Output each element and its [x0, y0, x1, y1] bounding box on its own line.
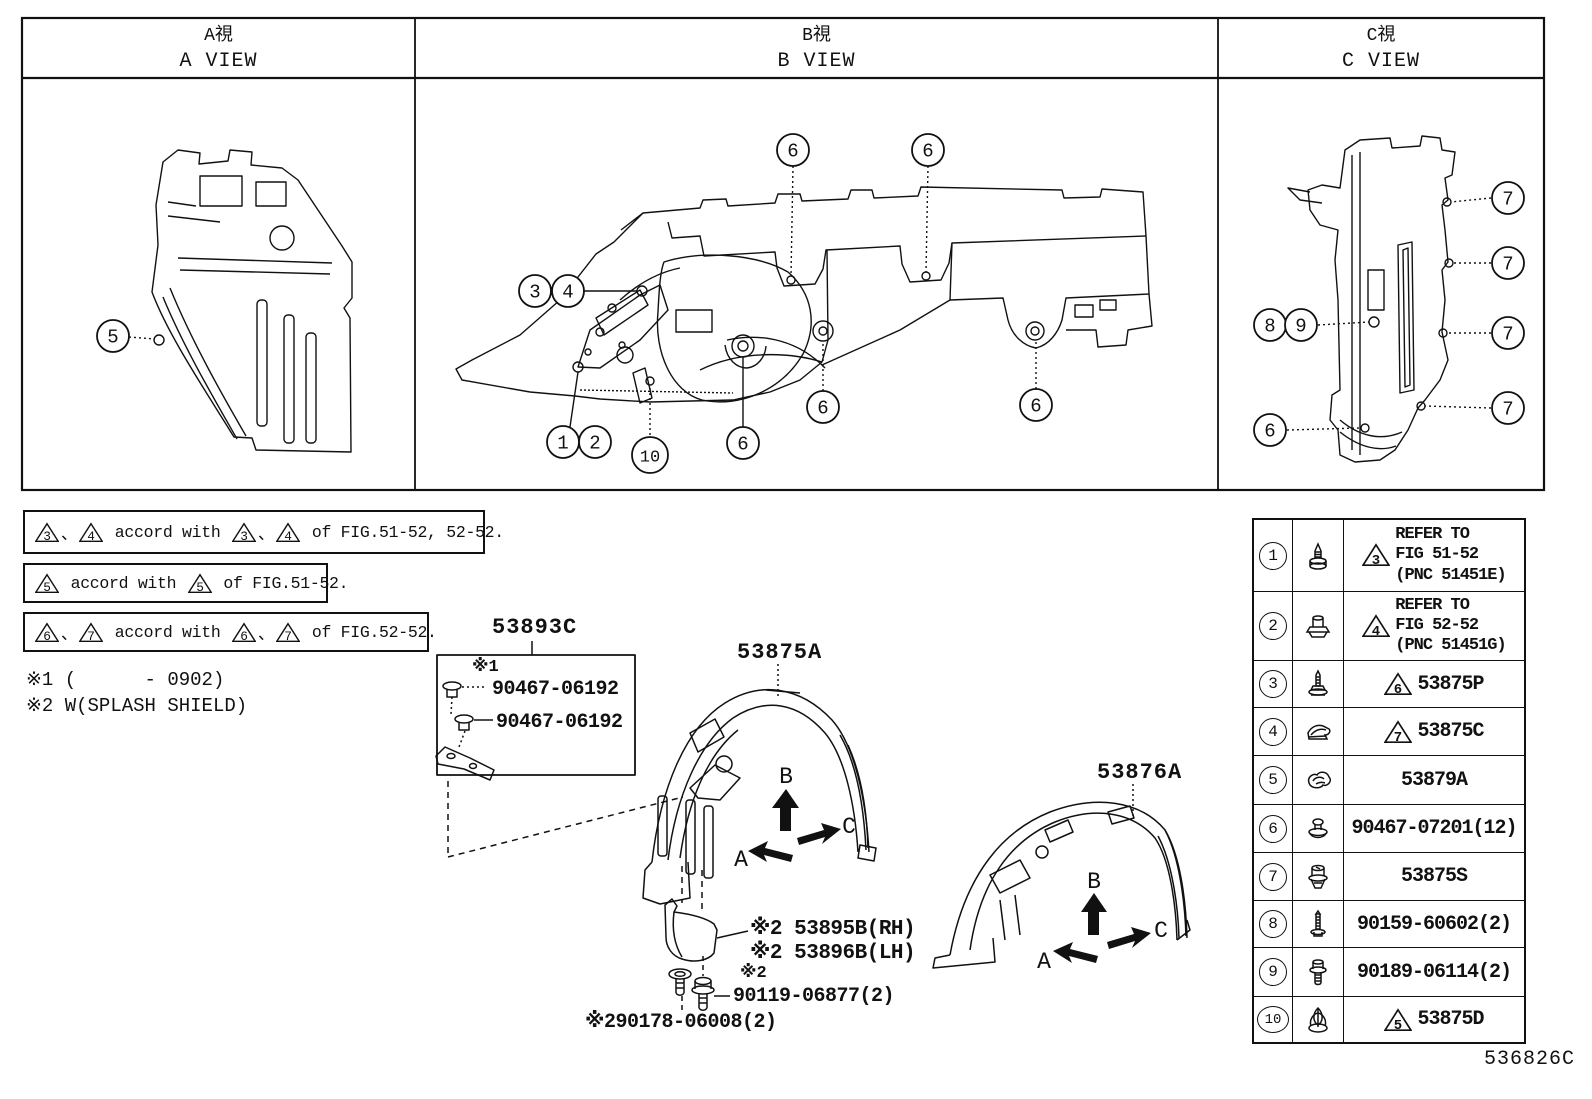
part-label-clip-b: 90467-06192 — [496, 711, 623, 734]
triangle-5-icon: 5 — [1384, 1008, 1412, 1032]
callout-5: 5 — [97, 320, 129, 352]
direction-letter-A: A — [734, 847, 748, 873]
ref-number-badge: 2 — [1259, 612, 1287, 640]
part-label-53875a: 53875A — [737, 640, 822, 665]
svg-text:3: 3 — [1372, 553, 1380, 567]
svg-text:6: 6 — [922, 141, 933, 163]
ref-number-badge: 3 — [1259, 670, 1287, 698]
callout-7: 7 — [1492, 182, 1524, 214]
direction-letter-B: B — [779, 764, 793, 790]
tapping-screw-icon — [1303, 909, 1333, 939]
screw-icon — [1303, 541, 1333, 571]
svg-text:7: 7 — [1502, 399, 1513, 421]
callout-6: 6 — [1254, 414, 1286, 446]
callout-2: 2 — [579, 426, 611, 458]
table-row: 3653875P — [1254, 660, 1524, 707]
svg-text:6: 6 — [240, 629, 247, 643]
note-text-end: of FIG.51-52, 52-52. — [302, 523, 504, 542]
note2-mark: ※2 — [740, 962, 767, 983]
part-number-text: 90159-60602(2) — [1357, 913, 1511, 936]
table-row: 990189-06114(2) — [1254, 947, 1524, 996]
svg-text:6: 6 — [1030, 396, 1041, 418]
part-number-text: 53875P — [1417, 673, 1483, 696]
part-label-53893c: 53893C — [492, 615, 577, 640]
ref-number-badge: 4 — [1259, 718, 1287, 746]
callout-1: 1 — [547, 426, 579, 458]
callout-7: 7 — [1492, 392, 1524, 424]
part-number-text: 53875S — [1401, 865, 1467, 888]
direction-letter-C: C — [1154, 918, 1168, 944]
svg-text:4: 4 — [87, 529, 95, 543]
callout-6: 6 — [727, 427, 759, 459]
triangle-6-icon: 6 — [1384, 672, 1412, 696]
part-number-text: 53875C — [1417, 720, 1483, 743]
svg-text:9: 9 — [1295, 316, 1306, 338]
table-row: 753875S — [1254, 852, 1524, 900]
svg-text:4: 4 — [1372, 624, 1380, 638]
front-liner-drawing — [643, 664, 876, 912]
a-view-title-en: A VIEW — [22, 48, 415, 75]
svg-text:5: 5 — [43, 580, 50, 594]
callout-10: 10 — [632, 437, 668, 473]
svg-text:6: 6 — [1394, 682, 1402, 696]
callout-9: 9 — [1285, 309, 1317, 341]
part-number-text: 53879A — [1401, 769, 1467, 792]
table-row: 890159-60602(2) — [1254, 900, 1524, 947]
svg-text:7: 7 — [1394, 729, 1402, 743]
footnote-2: ※2 W(SPLASH SHIELD) — [26, 694, 247, 717]
table-row: 13REFER TO FIG 51-52 (PNC 51451E) — [1254, 520, 1524, 591]
svg-text:5: 5 — [107, 327, 118, 349]
triangle-6-icon: 6 — [35, 622, 59, 643]
note1-mark: ※1 — [472, 656, 499, 677]
svg-text:3: 3 — [529, 282, 540, 304]
svg-text:7: 7 — [1502, 324, 1513, 346]
callout-7: 7 — [1492, 247, 1524, 279]
part-label-screw: ※290178-06008(2) — [585, 1008, 776, 1034]
triangle-7-icon: 7 — [1384, 720, 1412, 744]
c-view-title-jp: C視 — [1218, 24, 1544, 48]
svg-text:8: 8 — [1264, 316, 1275, 338]
table-row: 24REFER TO FIG 52-52 (PNC 51451G) — [1254, 591, 1524, 660]
part-label-mudguard-rh: ※2 53895B(RH) — [750, 915, 915, 941]
svg-text:7: 7 — [285, 629, 292, 643]
triangle-5-icon: 5 — [35, 573, 59, 594]
c-view-title-en: C VIEW — [1218, 48, 1544, 75]
svg-text:6: 6 — [787, 141, 798, 163]
svg-text:6: 6 — [737, 434, 748, 456]
table-row: 553879A — [1254, 755, 1524, 804]
svg-text:4: 4 — [285, 529, 293, 543]
table-row: 10553875D — [1254, 996, 1524, 1042]
grommet-clip-icon — [1303, 814, 1333, 844]
triangle-3-icon: 3 — [1362, 543, 1390, 567]
expansion-clip-icon — [1303, 1005, 1333, 1035]
svg-text:10: 10 — [640, 449, 660, 468]
callout-6: 6 — [1020, 389, 1052, 421]
svg-text:5: 5 — [196, 580, 203, 594]
triangle-3-icon: 3 — [35, 522, 59, 543]
stud-clip-icon — [1303, 611, 1333, 641]
part-number-text: 53875D — [1417, 1008, 1483, 1031]
triangle-7-icon: 7 — [79, 622, 103, 643]
svg-text:3: 3 — [240, 529, 247, 543]
svg-text:2: 2 — [589, 433, 600, 455]
b-view-title-jp: B視 — [415, 24, 1218, 48]
a-view-header: A視 A VIEW — [22, 24, 415, 75]
note-text-mid: accord with — [61, 574, 186, 593]
ref-number-badge: 9 — [1259, 958, 1287, 986]
b-view-header: B視 B VIEW — [415, 24, 1218, 75]
part-number-text: REFER TO FIG 51-52 (PNC 51451E) — [1395, 525, 1505, 585]
triangle-4-icon: 4 — [1362, 614, 1390, 638]
note-text-end: of FIG.51-52. — [214, 574, 348, 593]
triangle-5-icon: 5 — [188, 573, 212, 594]
parts-table: 13REFER TO FIG 51-52 (PNC 51451E)24REFER… — [1252, 518, 1526, 1044]
svg-text:1: 1 — [557, 433, 568, 455]
c-view-header: C視 C VIEW — [1218, 24, 1544, 75]
a-view-drawing — [129, 150, 352, 452]
b-view-title-en: B VIEW — [415, 48, 1218, 75]
part-label-clip-a: 90467-06192 — [492, 678, 619, 701]
direction-letter-B: B — [1087, 869, 1101, 895]
direction-letter-A: A — [1037, 949, 1051, 975]
ref-number-badge: 7 — [1259, 863, 1287, 891]
part-number-text: 90189-06114(2) — [1357, 961, 1511, 984]
svg-text:6: 6 — [43, 629, 50, 643]
part-label-mudguard-lh: ※2 53896B(LH) — [750, 939, 915, 965]
note-text-mid: accord with — [105, 623, 230, 642]
part-label-bolt: 90119-06877(2) — [733, 985, 894, 1008]
ref-number-badge: 10 — [1257, 1006, 1289, 1033]
callout-6: 6 — [912, 134, 944, 166]
callout-8: 8 — [1254, 309, 1286, 341]
note-box-3: 6、7 accord with 6、7 of FIG.52-52. — [23, 612, 429, 652]
ref-number-badge: 1 — [1259, 542, 1287, 570]
footnote-1: ※1 ( - 0902) — [26, 668, 224, 691]
svg-text:4: 4 — [562, 282, 573, 304]
svg-text:6: 6 — [817, 398, 828, 420]
a-view-title-jp: A視 — [22, 24, 415, 48]
triangle-3-icon: 3 — [232, 522, 256, 543]
screw-grommet-icon — [1303, 862, 1333, 892]
c-view-drawing — [1287, 136, 1491, 462]
callout-3: 3 — [519, 275, 551, 307]
triangle-7-icon: 7 — [276, 622, 300, 643]
callout-layer: 5663412106667777896 — [97, 134, 1524, 473]
svg-text:6: 6 — [1264, 421, 1275, 443]
svg-text:7: 7 — [87, 629, 94, 643]
svg-text:5: 5 — [1394, 1017, 1402, 1031]
callout-7: 7 — [1492, 317, 1524, 349]
svg-text:7: 7 — [1502, 189, 1513, 211]
ref-number-badge: 5 — [1259, 766, 1287, 794]
view-table-frame — [22, 18, 1544, 490]
ref-number-badge: 8 — [1259, 910, 1287, 938]
part-number-text: REFER TO FIG 52-52 (PNC 51451G) — [1395, 596, 1505, 656]
callout-6: 6 — [777, 134, 809, 166]
triangle-6-icon: 6 — [232, 622, 256, 643]
spring-clip-icon — [1303, 717, 1333, 747]
note-box-2: 5 accord with 5 of FIG.51-52. — [23, 563, 328, 603]
table-row: 690467-07201(12) — [1254, 804, 1524, 852]
note-text-mid: accord with — [105, 523, 230, 542]
hook-clip-icon — [1303, 765, 1333, 795]
callout-6: 6 — [807, 391, 839, 423]
figure-code: 536826C — [1484, 1048, 1575, 1071]
triangle-4-icon: 4 — [79, 522, 103, 543]
svg-text:3: 3 — [43, 529, 50, 543]
note-box-1: 3、4 accord with 3、4 of FIG.51-52, 52-52. — [23, 510, 485, 554]
table-row: 4753875C — [1254, 707, 1524, 755]
washer-screw-icon — [1303, 669, 1333, 699]
callout-4: 4 — [552, 275, 584, 307]
part-label-53876a: 53876A — [1097, 760, 1182, 785]
direction-letter-C: C — [842, 814, 856, 840]
svg-text:7: 7 — [1502, 254, 1513, 276]
part-number-text: 90467-07201(12) — [1351, 817, 1516, 840]
note-text-end: of FIG.52-52. — [302, 623, 436, 642]
ref-number-badge: 6 — [1259, 815, 1287, 843]
parts-diagram-page: BACBAC 5663412106667777896 A視 A VIEW B視 … — [0, 0, 1592, 1099]
triangle-4-icon: 4 — [276, 522, 300, 543]
rear-liner-drawing — [933, 784, 1190, 968]
bolt-icon — [1303, 957, 1333, 987]
